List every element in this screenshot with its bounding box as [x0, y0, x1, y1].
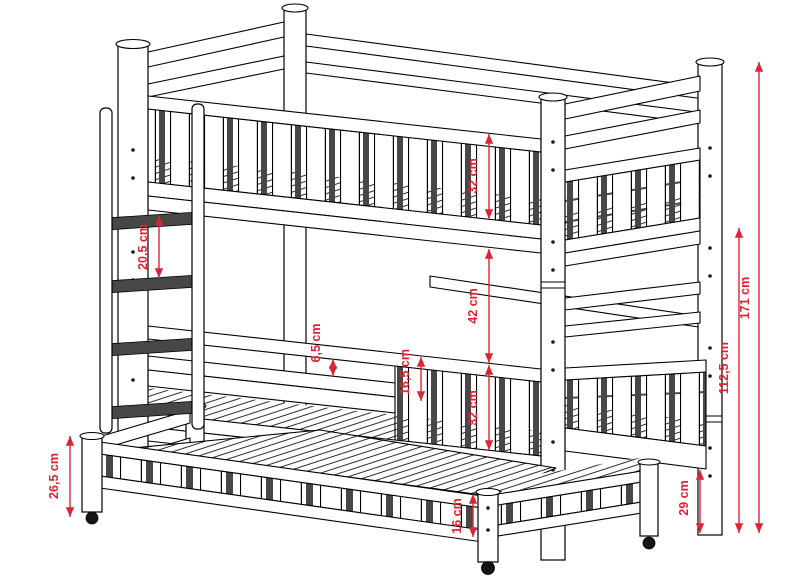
middle-bunk-foot-guardrail [565, 360, 706, 469]
dimension-rail-to-floor: 29 cm [677, 470, 700, 533]
dimension-label: 42 cm [466, 288, 480, 323]
dimension-label: 32 cm [466, 390, 480, 425]
dimension-label: 29 cm [677, 480, 691, 515]
top-bunk-guardrail [148, 96, 541, 253]
top-bunk-foot-guardrail [565, 148, 700, 266]
foot-second-board [565, 110, 700, 149]
trundle-left-post [80, 433, 104, 525]
bunk-bed-technical-drawing: 171 cm 112,5 cm 29 cm 32 cm 42 cm 32 cm … [0, 0, 800, 585]
technical-drawing-page: 171 cm 112,5 cm 29 cm 32 cm 42 cm 32 cm … [0, 0, 800, 585]
headboard [148, 22, 284, 97]
trundle-rear-post [638, 459, 660, 549]
dimension-total-height: 171 cm [738, 62, 759, 533]
dimension-label: 20,5 cm [136, 224, 150, 270]
dimension-label: 32 cm [466, 158, 480, 193]
ladder-rail-left [100, 108, 112, 433]
dimension-label: 16 cm [450, 498, 464, 533]
dimension-label: 6,5 cm [309, 324, 323, 363]
dimension-label: 171 cm [738, 277, 752, 319]
caster-wheel [86, 512, 98, 524]
dimension-trundle-height: 26,5 cm [47, 436, 70, 517]
dimension-bunk-gap: 42 cm [466, 249, 489, 363]
dimension-label: 26,5 cm [47, 453, 61, 499]
trundle-right-post [476, 489, 500, 575]
dimension-label: 112,5 cm [717, 342, 731, 394]
caster-wheel [482, 562, 495, 575]
foot-end-face [565, 76, 706, 469]
dimension-label: 16,5 cm [398, 349, 412, 395]
caster-wheel [643, 537, 655, 549]
ladder-rail-right [192, 104, 204, 429]
